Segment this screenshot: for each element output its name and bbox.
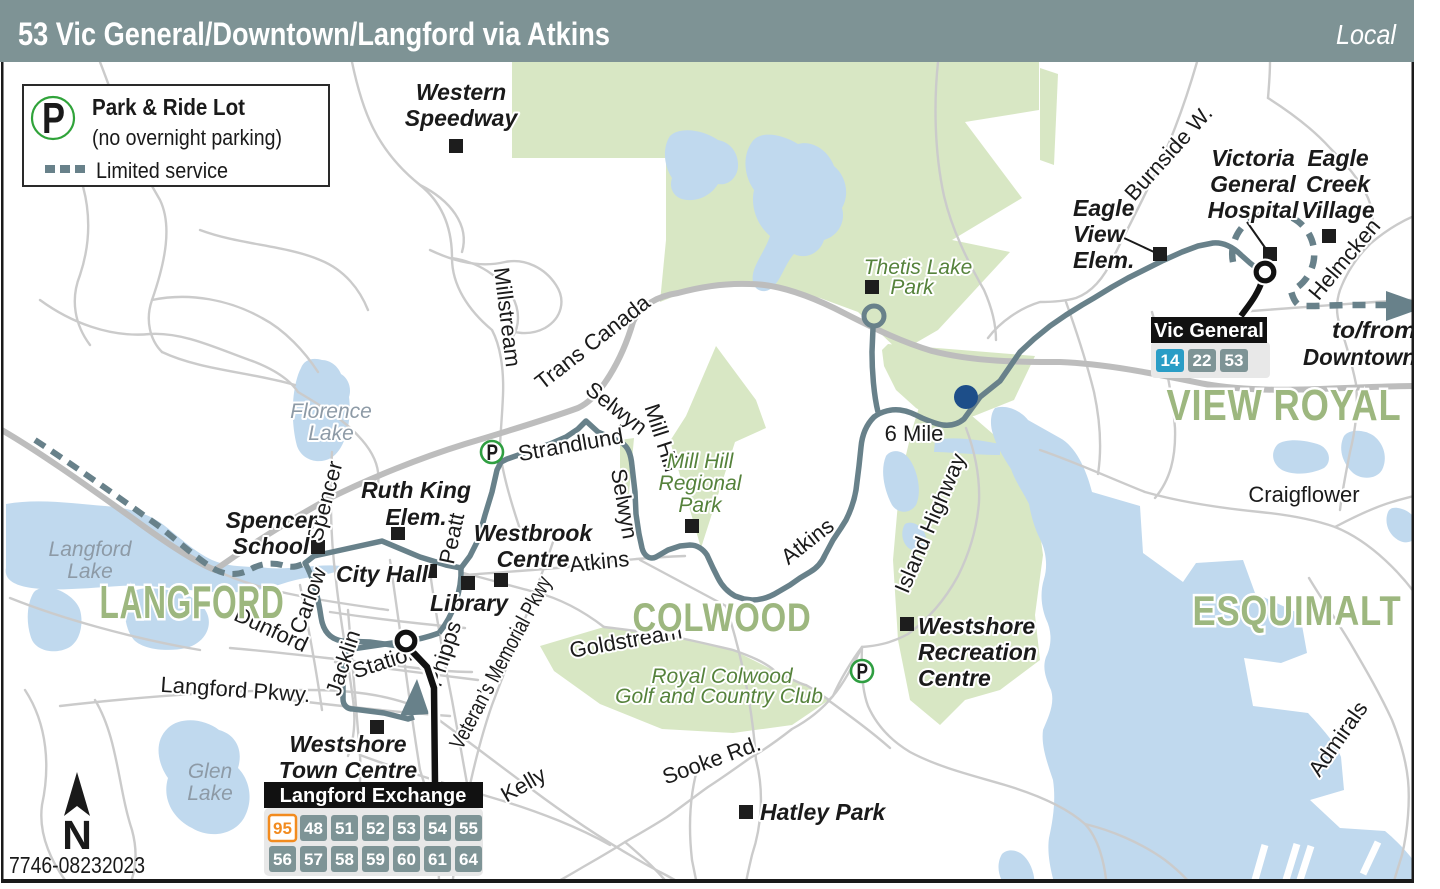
svg-text:to/from: to/from	[1332, 317, 1416, 343]
svg-text:Lake: Lake	[308, 422, 354, 445]
svg-text:Westshore: Westshore	[289, 731, 406, 757]
svg-text:Centre: Centre	[918, 665, 991, 691]
svg-text:Park & Ride Lot: Park & Ride Lot	[92, 94, 245, 120]
svg-text:Langford Exchange: Langford Exchange	[280, 785, 467, 807]
svg-text:Spencer: Spencer	[226, 507, 318, 533]
svg-text:Downtown: Downtown	[1303, 344, 1416, 370]
svg-text:P: P	[857, 659, 869, 684]
svg-text:Eagle: Eagle	[1073, 195, 1135, 221]
svg-text:Park: Park	[678, 494, 723, 517]
svg-text:7746-08232023: 7746-08232023	[9, 852, 145, 878]
svg-text:51: 51	[335, 819, 354, 838]
svg-text:Village: Village	[1301, 197, 1374, 223]
svg-text:Hatley Park: Hatley Park	[760, 799, 887, 825]
svg-text:Craigflower: Craigflower	[1248, 482, 1359, 507]
svg-text:P: P	[42, 94, 65, 143]
svg-text:14: 14	[1161, 351, 1180, 370]
svg-text:Regional: Regional	[659, 472, 743, 495]
svg-text:Local: Local	[1336, 19, 1397, 50]
svg-text:58: 58	[335, 850, 354, 869]
svg-text:View: View	[1073, 221, 1127, 247]
svg-text:Westbrook: Westbrook	[474, 520, 594, 546]
svg-text:53: 53	[1225, 351, 1244, 370]
svg-text:Hospital: Hospital	[1208, 197, 1299, 223]
svg-text:VIEW ROYAL: VIEW ROYAL	[1167, 381, 1402, 430]
svg-text:Glen: Glen	[188, 760, 232, 783]
svg-text:Mill Hill: Mill Hill	[667, 450, 735, 473]
svg-text:School: School	[233, 533, 310, 559]
svg-text:Elem.: Elem.	[385, 504, 446, 530]
svg-text:52: 52	[366, 819, 385, 838]
svg-text:Langford: Langford	[49, 538, 133, 561]
svg-text:Elem.: Elem.	[1073, 247, 1134, 273]
svg-text:Town Centre: Town Centre	[279, 757, 418, 783]
svg-text:61: 61	[428, 850, 447, 869]
svg-text:54: 54	[428, 819, 447, 838]
svg-text:48: 48	[304, 819, 323, 838]
svg-text:95: 95	[273, 819, 292, 838]
svg-text:Vic General: Vic General	[1154, 320, 1264, 342]
svg-text:Victoria: Victoria	[1211, 145, 1295, 171]
svg-text:(no overnight parking): (no overnight parking)	[92, 125, 282, 150]
svg-text:ESQUIMALT: ESQUIMALT	[1193, 587, 1402, 634]
svg-text:Lake: Lake	[187, 782, 233, 805]
svg-text:Florence: Florence	[290, 400, 372, 423]
svg-text:Limited service: Limited service	[96, 158, 228, 183]
svg-text:59: 59	[366, 850, 385, 869]
svg-text:City Hall: City Hall	[336, 561, 429, 587]
svg-text:Westshore: Westshore	[918, 613, 1035, 639]
svg-text:53 Vic General/Downtown/Langfo: 53 Vic General/Downtown/Langford via Atk…	[18, 16, 610, 52]
svg-text:COLWOOD: COLWOOD	[633, 596, 812, 640]
svg-text:Centre: Centre	[497, 546, 570, 572]
svg-text:LANGFORD: LANGFORD	[100, 576, 285, 628]
svg-text:57: 57	[304, 850, 323, 869]
svg-text:Golf and Country Club: Golf and Country Club	[615, 685, 823, 708]
svg-text:Library: Library	[430, 590, 509, 616]
svg-text:Recreation: Recreation	[918, 639, 1037, 665]
svg-text:56: 56	[273, 850, 292, 869]
svg-text:6 Mile: 6 Mile	[885, 421, 944, 446]
svg-text:Eagle: Eagle	[1307, 145, 1369, 171]
svg-text:Creek: Creek	[1306, 171, 1371, 197]
svg-text:22: 22	[1193, 351, 1212, 370]
svg-text:55: 55	[459, 819, 478, 838]
svg-text:Park: Park	[890, 276, 935, 299]
svg-text:P: P	[487, 440, 499, 465]
svg-text:General: General	[1210, 171, 1296, 197]
svg-text:Speedway: Speedway	[405, 105, 519, 131]
svg-text:60: 60	[397, 850, 416, 869]
svg-text:53: 53	[397, 819, 416, 838]
svg-text:Ruth King: Ruth King	[361, 477, 471, 503]
svg-text:64: 64	[459, 850, 478, 869]
svg-text:Western: Western	[416, 79, 506, 105]
